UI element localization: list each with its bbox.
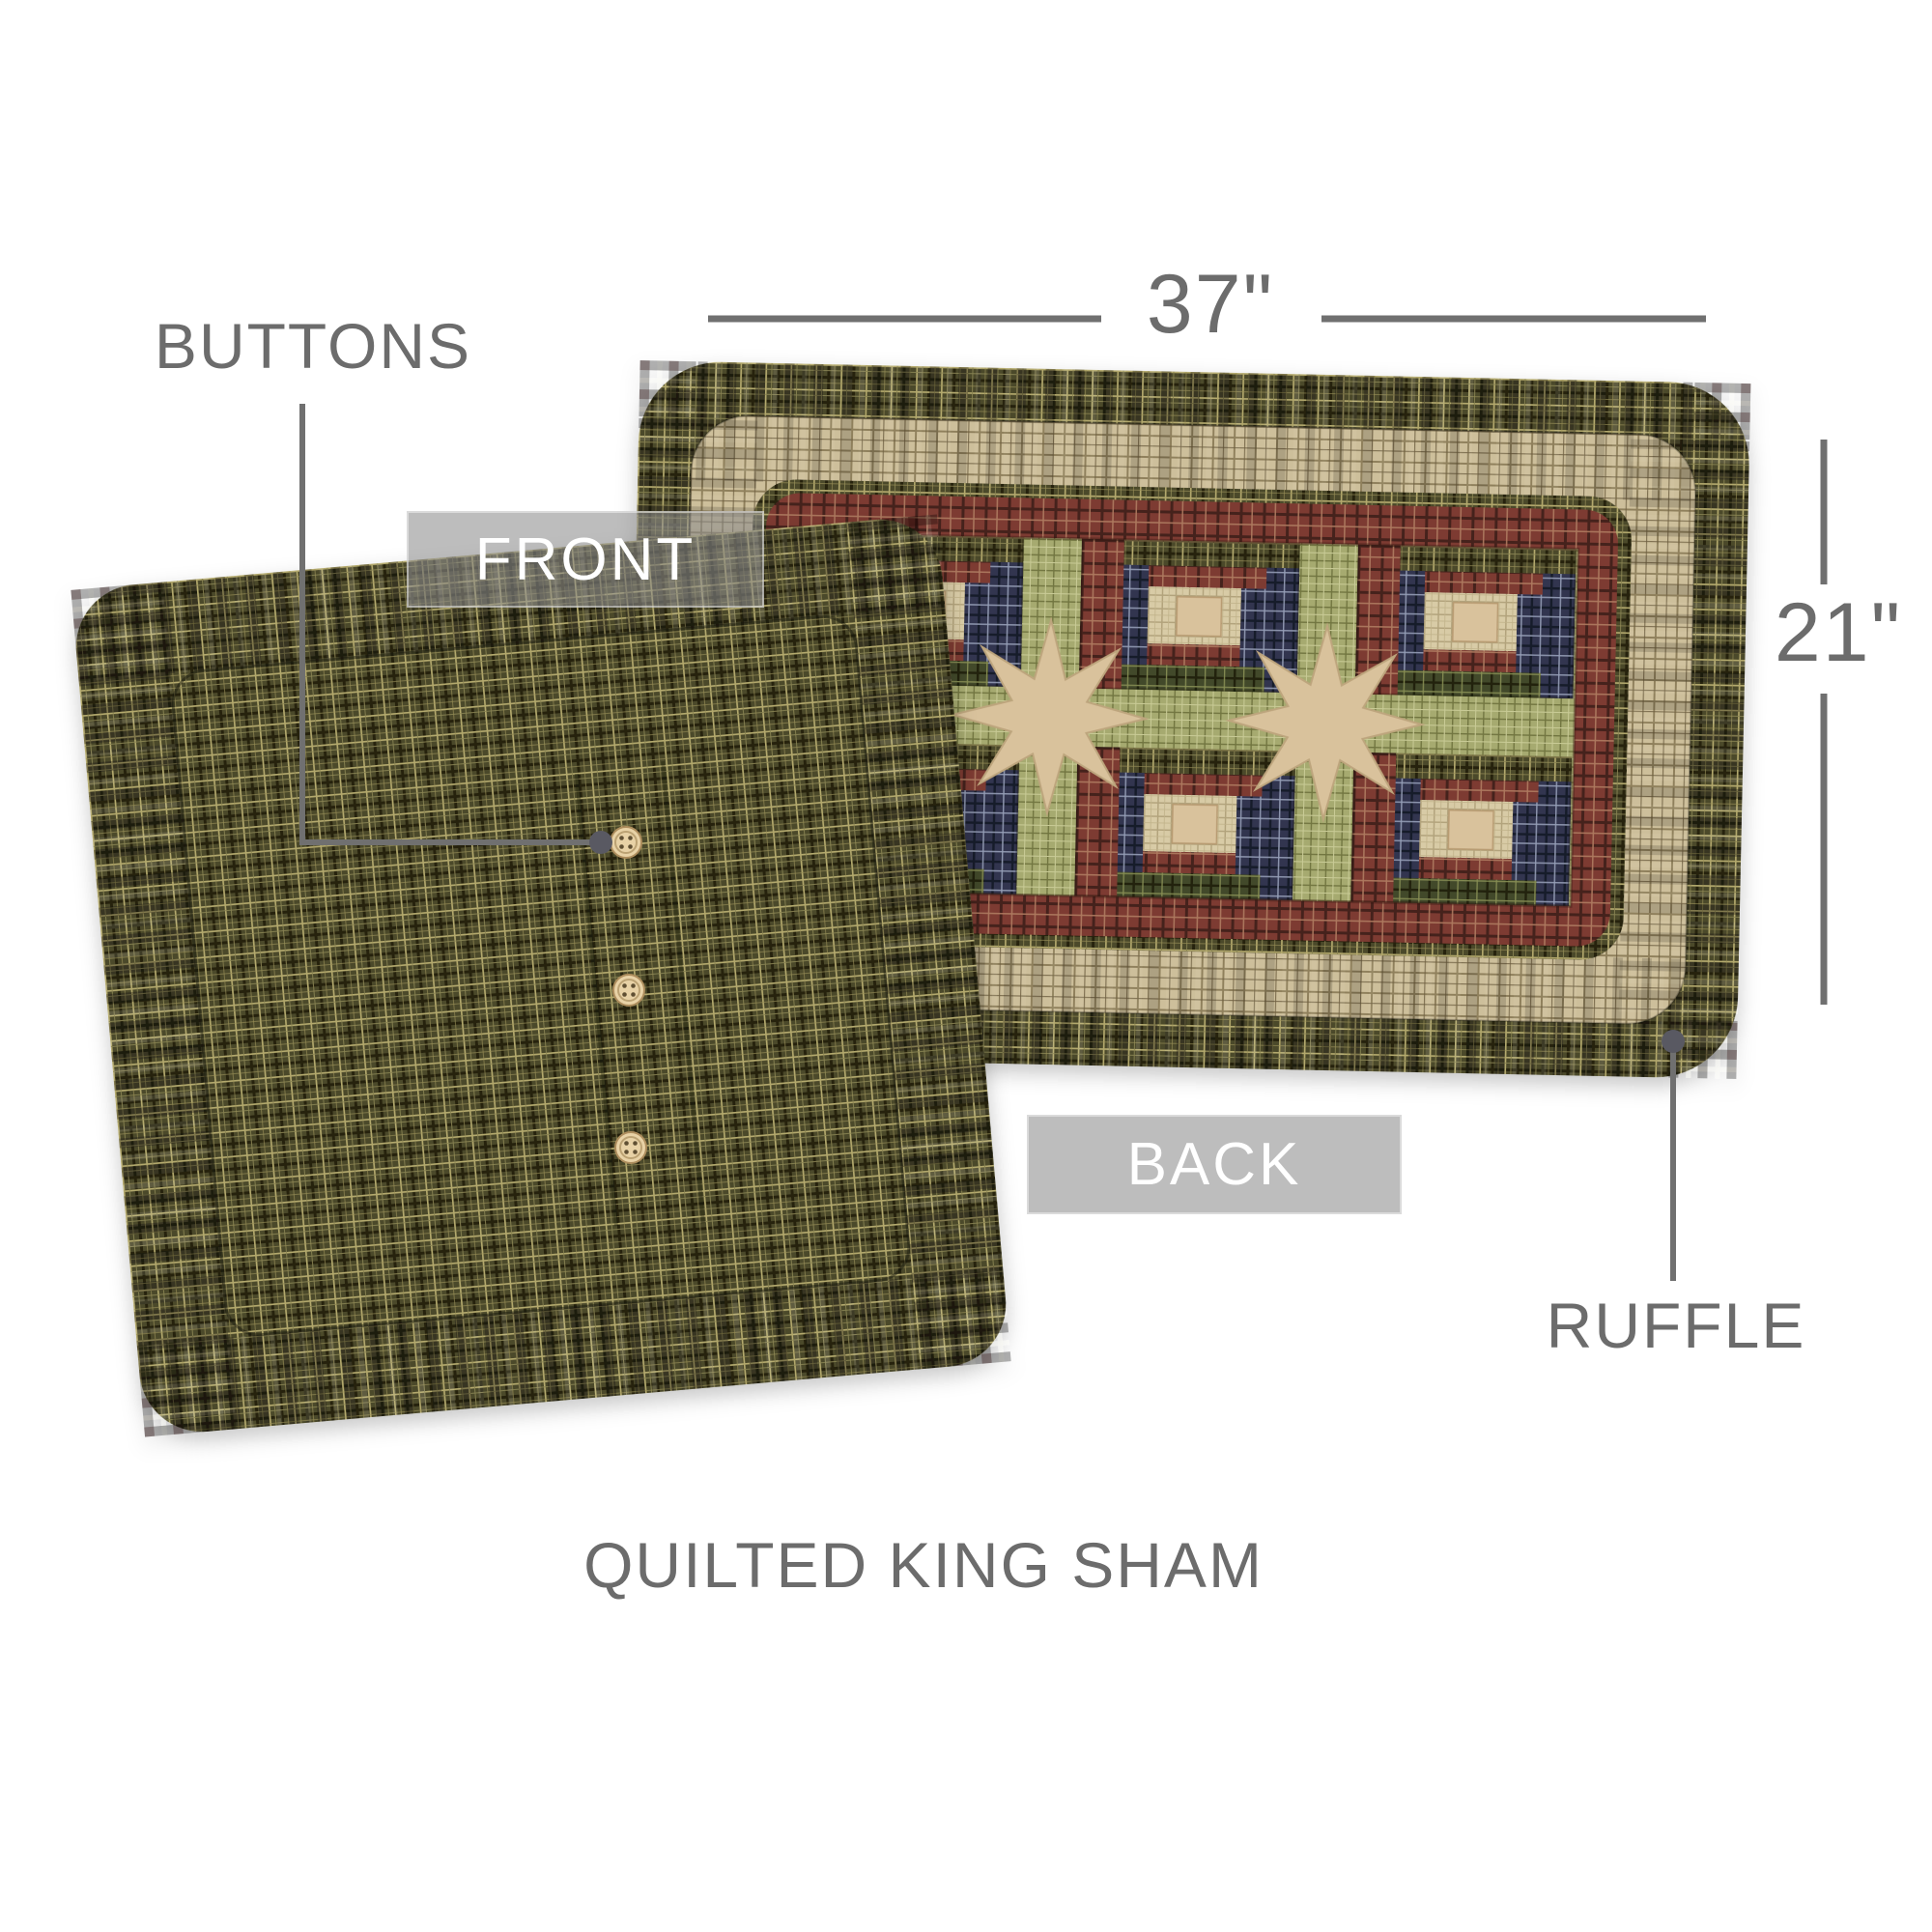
pillow-illustration	[0, 0, 1932, 1932]
buttons-label: BUTTONS	[120, 309, 506, 383]
button-icon	[613, 975, 644, 1006]
back-view-label: BACK	[1127, 1130, 1302, 1199]
page-title: QUILTED KING SHAM	[0, 1528, 1847, 1602]
width-dimension: 37"	[1109, 257, 1312, 353]
buttons-leader-dot	[589, 831, 612, 854]
product-diagram: BUTTONS 37" 21" FRONT BACK RUFFLE QUILTE…	[0, 0, 1932, 1932]
button-icon	[615, 1132, 646, 1163]
front-view-tag: FRONT	[407, 511, 764, 608]
back-pillow	[71, 514, 1010, 1436]
height-dimension: 21"	[1742, 585, 1932, 681]
ruffle-leader-dot	[1662, 1030, 1685, 1053]
ruffle-label: RUFFLE	[1531, 1289, 1821, 1362]
front-view-label: FRONT	[475, 526, 696, 594]
back-view-tag: BACK	[1027, 1115, 1402, 1214]
button-icon	[611, 827, 641, 858]
